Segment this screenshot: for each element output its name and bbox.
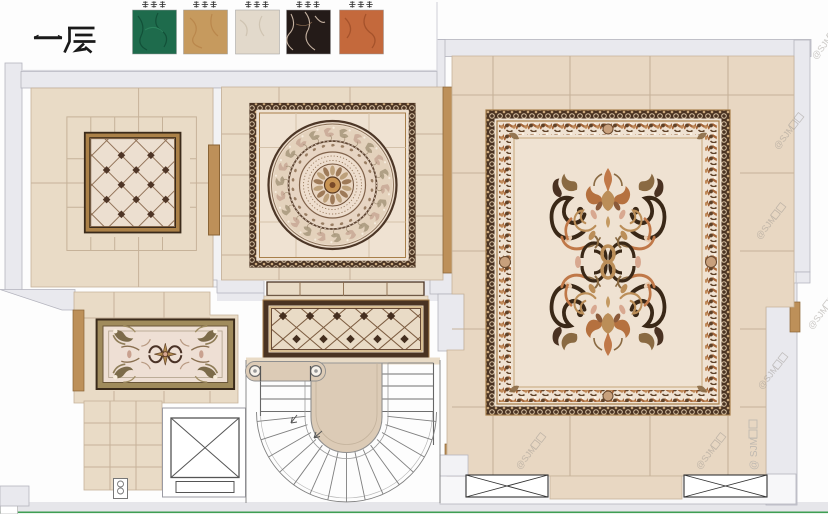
svg-text:@ SJM: @ SJM [749,437,760,470]
